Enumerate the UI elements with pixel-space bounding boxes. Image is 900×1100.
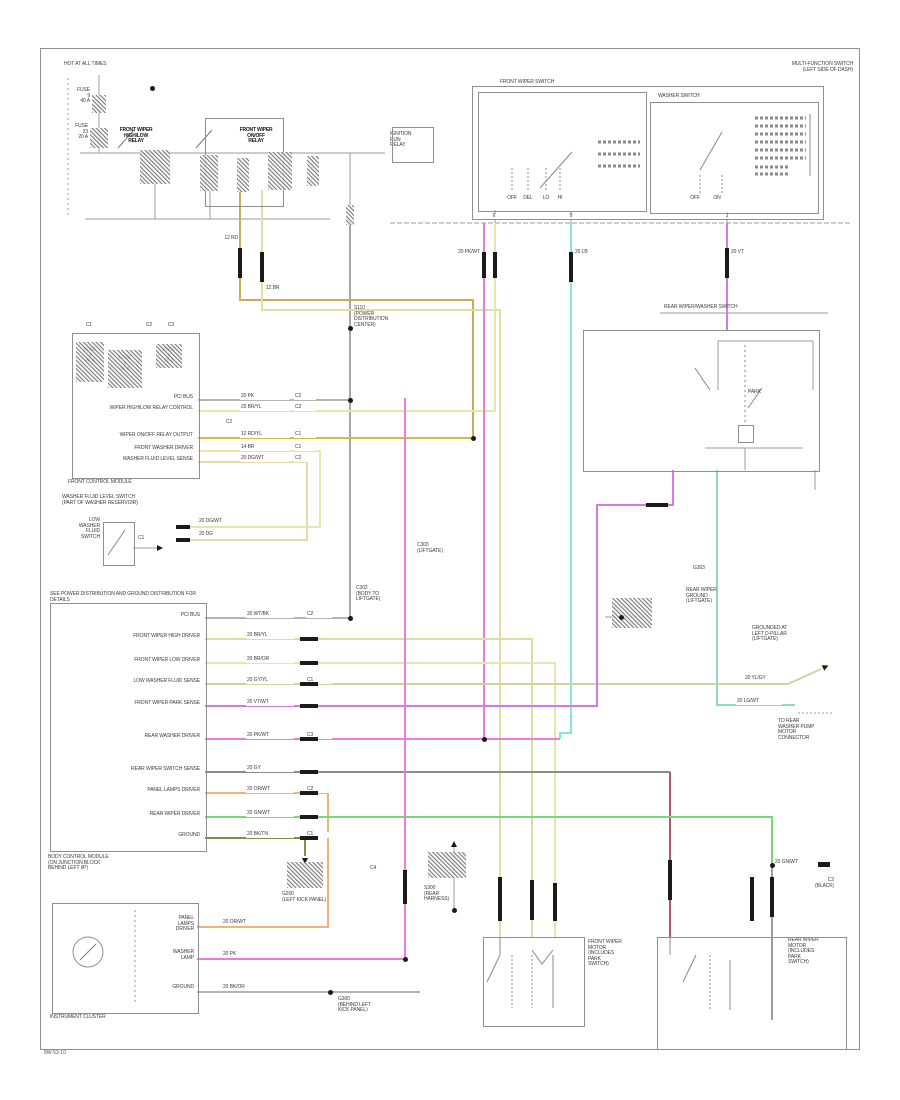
box-pdc-relay4-box — [392, 127, 434, 163]
junction-rear-return — [770, 863, 775, 868]
junction-bcm-pci — [348, 616, 353, 621]
conn-gold2 — [176, 538, 190, 542]
junction-fcm-pci — [348, 398, 353, 403]
symbol-ground-g301-symbol — [428, 852, 466, 878]
conn-mfs-washer — [725, 248, 729, 278]
box-washer-switch-box — [650, 102, 819, 214]
conn-fwm-feed — [498, 877, 502, 921]
junction-g303 — [619, 615, 624, 620]
conn-mfs-wiper — [493, 252, 497, 278]
conn-wiper-low — [553, 883, 557, 921]
symbol-pdc-fuse-symbol — [92, 95, 106, 113]
conn-bcm-gnd — [300, 836, 318, 840]
symbol-ground-g200-symbol — [287, 862, 323, 888]
box-body-control-module-box — [50, 603, 207, 852]
conn-wiper-high — [530, 880, 534, 920]
symbol-pdc-relay4-symbol — [268, 152, 292, 190]
pdc-terminal — [150, 86, 155, 91]
conn-bcm-low — [300, 661, 318, 665]
box-instrument-cluster-box — [52, 903, 199, 1014]
box-washer-level-switch-symbol — [103, 522, 135, 566]
conn-mfs-delay — [569, 252, 573, 282]
symbol-relay4-fuse-symbol — [346, 205, 354, 225]
splice-s300 — [452, 908, 457, 913]
symbol-fcm-fuse3-symbol — [156, 344, 182, 368]
conn-bcm-lamps — [300, 791, 318, 795]
conn-mfs-park — [482, 252, 486, 278]
box-front-wiper-switch-box — [478, 92, 647, 212]
conn-bcm-high — [300, 637, 318, 641]
wiring-diagram-page: HOT AT ALL TIMESFUSE 9 40 AFUSE 23 20 AF… — [0, 0, 900, 1100]
symbol-fcm-fuse2-symbol — [108, 350, 142, 388]
conn-green — [818, 862, 830, 867]
conn-bcm-rearsw — [300, 770, 318, 774]
junction-ic-ground — [328, 990, 333, 995]
box-rear-wiper-motor-box — [657, 937, 847, 1050]
symbol-pdc-relay2-symbol — [200, 155, 218, 191]
splice-s110 — [348, 326, 353, 331]
page-code: 8W-53-10 — [44, 1050, 66, 1056]
symbol-fcm-fuse1-symbol — [76, 342, 104, 382]
conn-washer-lamp — [403, 870, 407, 904]
symbol-pdc-relay5-symbol — [307, 156, 319, 186]
conn-bcm-sense — [300, 682, 318, 686]
symbol-ground-g303-symbol — [612, 598, 652, 628]
conn-violet — [646, 503, 668, 507]
symbol-pdc-fusible-link-symbol — [90, 128, 108, 148]
box-front-wiper-motor-box — [483, 937, 585, 1027]
conn-bcm-reardrv — [300, 815, 318, 819]
conn-tan2 — [260, 252, 264, 282]
conn-rear-feed — [750, 877, 754, 921]
conn-bcm-washer — [300, 737, 318, 741]
conn-gold1 — [176, 525, 190, 529]
conn-rear-sense — [668, 860, 672, 900]
conn-tan1 — [238, 248, 242, 278]
junction-onoff — [471, 436, 476, 441]
symbol-pdc-relay1-symbol — [140, 150, 170, 184]
junction-washer-lamp — [403, 957, 408, 962]
conn-rear-return — [770, 877, 774, 917]
box-park-switch-symbol — [738, 425, 754, 443]
symbol-pdc-relay3-symbol — [237, 158, 249, 192]
conn-bcm-park — [300, 704, 318, 708]
junction-park — [482, 737, 487, 742]
box-rear-wiper-washer-switch-box — [583, 330, 820, 472]
